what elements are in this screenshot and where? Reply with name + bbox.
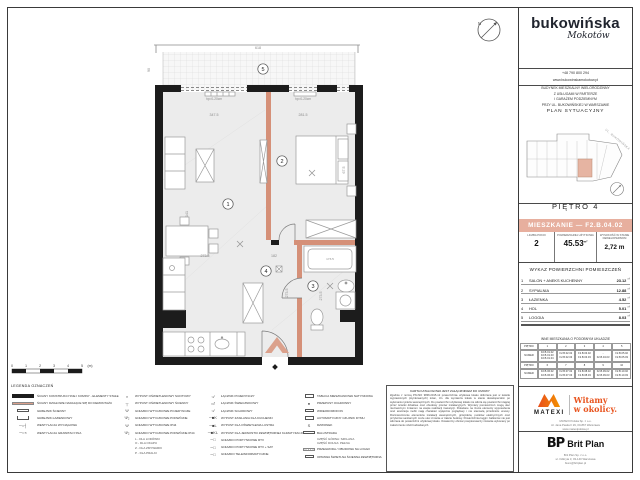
- legend-column-electric-1: ×WYPUST OŚWIETLENIOWY SUFITOWY ┬WYPUST O…: [121, 393, 209, 456]
- dim-bathtub: 173.5: [326, 257, 334, 261]
- dim-bath-v: 273.5: [319, 292, 323, 301]
- britplan-name: Brit Plan: [567, 439, 604, 449]
- table-row: 1SALON + ANEKS KUCHENNY23.12 m²: [521, 276, 630, 285]
- dim-bed: 67.5: [342, 167, 346, 174]
- matexi-tagline: Witamy w okolicy.: [574, 396, 617, 413]
- matexi-address: MATEXI Polska Sp. z o.o. Al. Jana Pawła …: [519, 419, 632, 432]
- dim-bedroom-window: 281.5: [299, 113, 308, 117]
- exhaust-vent-icon: ─○┤: [11, 424, 35, 428]
- dim-balcony: 618: [255, 46, 261, 50]
- similar-units-table: PIĘTRO 1 2 3 4 5 NUMER F2.B.01.02 F2.B.0…: [520, 343, 631, 379]
- matexi-name: MATEXI: [534, 410, 565, 416]
- disclaimer-title: KARTA KATALOGOWA JEST ZAŁĄCZNIKIEM DO UM…: [390, 389, 510, 393]
- legend-item: SDZWONEK: [303, 422, 383, 429]
- double-rule: [521, 324, 630, 326]
- disclaimer-body: Zgodnie z normą PN-ISO 9836:2015-12 powi…: [390, 394, 510, 427]
- meter-board-icon: [303, 394, 315, 399]
- legend-item: PRZEGRODA / OBUDOWA NA LOGGII: [303, 446, 383, 453]
- switch-single-icon: ○∕: [207, 395, 219, 399]
- legend-item: ŚCIANY DZIAŁOWE NADAJĄCE SIĘ DO DEMONTAŻ…: [11, 400, 123, 407]
- legend-item: ΨGNIAZDO WTYCZKOWE IP44: [121, 422, 209, 429]
- legend-item: GRZEJNIK ŁAZIENKOWY: [11, 415, 123, 422]
- dim-loggia: 90: [147, 68, 151, 72]
- legend-item: ΨGNIAZDO WTYCZKOWE POJEDYNCZE: [121, 408, 209, 415]
- rtv-socket-icon: ─□: [207, 438, 219, 442]
- divider: [519, 386, 632, 387]
- legend-item: GRZEJNIK ŚCIENNY: [11, 408, 123, 415]
- socket-single-icon: Ψ: [121, 409, 133, 413]
- legend-item: ○∕ŁĄCZNIK SCHODOWY: [207, 408, 305, 415]
- sleeve-icon: ●: [303, 402, 315, 406]
- toilet: [311, 309, 323, 330]
- brand-district: Mokotów: [519, 31, 632, 41]
- window-sill-label-right: hp=0-20cm: [295, 97, 311, 101]
- legend-column-electric-2: ○∕ŁĄCZNIK POJEDYNCZY ○⫽ŁĄCZNIK ŚWIECZNIK…: [207, 393, 305, 459]
- doorbell-icon: S: [303, 424, 315, 428]
- legend-item: ●PRZEPUST OCHRONNY: [303, 400, 383, 407]
- data-socket-icon: ─□: [207, 453, 219, 457]
- legend-item: ŚCIANY KONSTRUKCYJNE I KOMINY - ELEMENTY…: [11, 393, 123, 400]
- scale-bar: 0 1 2 3 4 5 (m): [11, 364, 92, 373]
- partition-wall-icon: [11, 402, 35, 407]
- floor-label: PIĘTRO 4: [519, 197, 632, 211]
- stat-area: POWIERZCHNIA UŻYTKOWA 45.53m²: [554, 232, 596, 262]
- switch-stair-icon: ○∕: [207, 409, 219, 413]
- socket-double-icon: Ψ₂: [121, 416, 133, 420]
- outdoor-lamp-icon: [303, 455, 315, 460]
- legend-item: WIDEODOMOFON: [303, 408, 383, 415]
- dim-hall-v: 273.5: [285, 289, 289, 298]
- svg-text:(m): (m): [88, 364, 93, 368]
- legend-item: ○∕ŁĄCZNIK POJEDYNCZY: [207, 393, 305, 400]
- developer-block: MATEXI Witamy w okolicy. MATEXI Polska S…: [519, 388, 632, 432]
- intercom-icon: [303, 409, 315, 414]
- legend-item: ─□GNIAZDO PODTYNKOWE RTV + SAT: [207, 444, 305, 451]
- architect-block: BP Brit Plan Brit Plan Sp. z o.o. ul. Od…: [519, 431, 632, 466]
- legend-item: ×WYPUST OŚWIETLENIOWY SUFITOWY: [121, 393, 209, 400]
- balustrade-icon: [303, 431, 315, 436]
- legend: LEGENDA OZNACZEŃ ŚCIANY KONSTRUKCYJNE I …: [11, 384, 383, 472]
- dim-hall: 182: [271, 254, 277, 258]
- svg-text:5: 5: [81, 364, 83, 368]
- washbasin: [338, 280, 354, 292]
- divider: [569, 395, 570, 415]
- table-row: 3ŁAZIENKA4.52 m²: [521, 294, 630, 303]
- site-plan-title: PLAN SYTUACYJNY: [519, 109, 632, 114]
- ceiling-light-icon: ×: [121, 395, 133, 399]
- room-number-2: 2: [280, 159, 283, 165]
- legend-item: ─■KLWYPUST DLA JEDNOSTKI ZEWNĘTRZNEJ KLI…: [207, 429, 305, 436]
- towel-radiator-icon: [11, 416, 35, 421]
- phone-number: +48 790 800 294: [519, 70, 632, 77]
- legend-item: ─□GNIAZDO TELEINFORMATYCZNE: [207, 451, 305, 458]
- compass-icon: N: [478, 19, 500, 41]
- solid-wall-icon: [11, 394, 35, 399]
- rooms-table: 1SALON + ANEKS KUCHENNY23.12 m² 2SYPIALN…: [521, 276, 630, 322]
- legend-column-equipment: TABLICA MIESZKANIOWA NATYNKOWA ●PRZEPUST…: [303, 393, 383, 461]
- room-number-3: 3: [311, 284, 314, 290]
- table-row: 2SYPIALNIA12.88 m²: [521, 285, 630, 294]
- britplan-address: Brit Plan Sp. z o.o. ul. Odkryta 3, 03-1…: [519, 453, 632, 466]
- legend-subitem: P - DLA PRALKI: [121, 451, 209, 456]
- loggia-screen-icon: [303, 448, 315, 452]
- table-row: 5LOGGIA8.03 m²: [521, 313, 630, 322]
- bed: [296, 136, 348, 184]
- dim-salon-window: 347.5: [210, 113, 219, 117]
- switch-chandelier-icon: ○⫽: [207, 402, 219, 406]
- smoke-sensor-icon: [303, 416, 315, 421]
- svg-text:N: N: [478, 21, 481, 26]
- gravity-vent-icon: ─○×: [11, 431, 35, 435]
- divider: [519, 68, 632, 69]
- window-sill-label-left: hp=0-20cm: [206, 97, 222, 101]
- legend-item: TABLICA MIESZKANIOWA NATYNKOWA: [303, 393, 383, 400]
- svg-text:1: 1: [25, 364, 27, 368]
- building-description: BUDYNEK MIESZKALNY WIELORODZINNY Z USŁUG…: [519, 86, 632, 108]
- catalog-sheet: { "accent_salmon": "#e7af9e", "accent_or…: [0, 0, 640, 480]
- svg-text:2: 2: [39, 364, 41, 368]
- similar-units-title: INNE MIESZKANIA O PODOBNYM UKŁADZIE: [519, 337, 632, 341]
- legend-item: ┬WYPUST OŚWIETLENIOWY ŚCIENNY: [121, 400, 209, 407]
- britplan-logo: BP: [547, 436, 564, 451]
- smoke-detector: [276, 266, 282, 272]
- highlighted-unit: [578, 159, 592, 177]
- cooker-outlet-icon: ─■K: [207, 416, 219, 420]
- table-row: 4HOL5.01 m²: [521, 304, 630, 313]
- rooms-table-title: WYKAZ POWIERZCHNI POMIESZCZEŃ: [519, 267, 632, 272]
- socket-double-ip44-icon: Ψ₂: [121, 431, 133, 435]
- wall-light-icon: ┬: [121, 402, 133, 406]
- matexi-m-icon: [537, 393, 561, 408]
- mirror-light-outlet-icon: ─■L: [207, 424, 219, 428]
- dim-kitchen: 273.5: [201, 254, 210, 258]
- info-panel: bukowińska Mokotów +48 790 800 294 www.b…: [519, 7, 632, 473]
- legend-item: OPRAWA ŚWIETLNA ŚCIENNA ZEWNĘTRZNA: [303, 454, 383, 461]
- rtv-sat-socket-icon: ─□: [207, 446, 219, 450]
- legend-item: Ψ₂GNIAZDO WTYCZKOWE PODWÓJNE: [121, 415, 209, 422]
- dim-salon-left: 141: [185, 211, 189, 217]
- wardrobe-hall: [243, 283, 263, 323]
- legend-item: ─■LWYPUST DLA OŚWIETLENIA LUSTRA: [207, 422, 305, 429]
- socket-ip44-icon: Ψ: [121, 424, 133, 428]
- legend-item: ─○┤WENTYLACJA WYCIĄGOWA: [11, 422, 123, 429]
- website-url: www.bukowinskamokotow.pl: [519, 77, 632, 84]
- stat-height: WYSOKOŚĆ W STANIE DEWELOPERSKIM 2,72 m: [596, 232, 632, 262]
- entrance-marker: [272, 364, 278, 370]
- legend-item: Ψ₂GNIAZDO WTYCZKOWE PODWÓJNE IP44: [121, 429, 209, 436]
- legend-title: LEGENDA OZNACZEŃ: [11, 384, 383, 388]
- svg-text:4: 4: [67, 364, 69, 368]
- legend-column-walls: ŚCIANY KONSTRUKCYJNE I KOMINY - ELEMENTY…: [11, 393, 123, 437]
- site-plan: UL. BUKOWIŃSKA: [519, 117, 632, 199]
- apartment-banner: MIESZKANIE — F2.B.04.02: [519, 219, 632, 232]
- legend-item: AUTOMATYCZNY CZUJNIK DYMU: [303, 415, 383, 422]
- legend-item: ○⫽ŁĄCZNIK ŚWIECZNIKOWY: [207, 400, 305, 407]
- tv-unit: [260, 140, 267, 183]
- apartment-stats: LICZBA POKOI 2 POWIERZCHNIA UŻYTKOWA 45.…: [519, 232, 632, 263]
- room-number-4: 4: [264, 269, 267, 275]
- legend-item: ─■KWYPUST ZASILANIA DLA KUCHENKI: [207, 415, 305, 422]
- disclaimer-box: KARTA KATALOGOWA JEST ZAŁĄCZNIKIEM DO UM…: [386, 385, 514, 472]
- washing-machine: [336, 292, 355, 309]
- legend-item: ─○×WENTYLACJA GRAWITACYJNA: [11, 429, 123, 436]
- room-number-1: 1: [226, 202, 229, 208]
- matexi-logo: MATEXI: [534, 393, 565, 416]
- wardrobe-bedroom: [306, 220, 356, 238]
- legend-item: BALUSTRADA: [303, 429, 383, 436]
- svg-text:0: 0: [11, 364, 13, 368]
- room-number-5: 5: [261, 67, 264, 73]
- site-compass-icon: [611, 183, 624, 196]
- legend-item: ─□GNIAZDO PODTYNKOWE RTV: [207, 437, 305, 444]
- brand-name: bukowińska: [519, 15, 632, 32]
- contact-block: +48 790 800 294 www.bukowinskamokotow.pl: [519, 70, 632, 84]
- stat-rooms: LICZBA POKOI 2: [519, 232, 554, 262]
- brand-logo: bukowińska Mokotów: [519, 15, 632, 41]
- coffee-table: [196, 149, 214, 182]
- sofa: [165, 137, 185, 189]
- svg-text:3: 3: [53, 364, 55, 368]
- radiator-icon: [11, 409, 35, 414]
- ac-outlet-icon: ─■KL: [207, 431, 219, 435]
